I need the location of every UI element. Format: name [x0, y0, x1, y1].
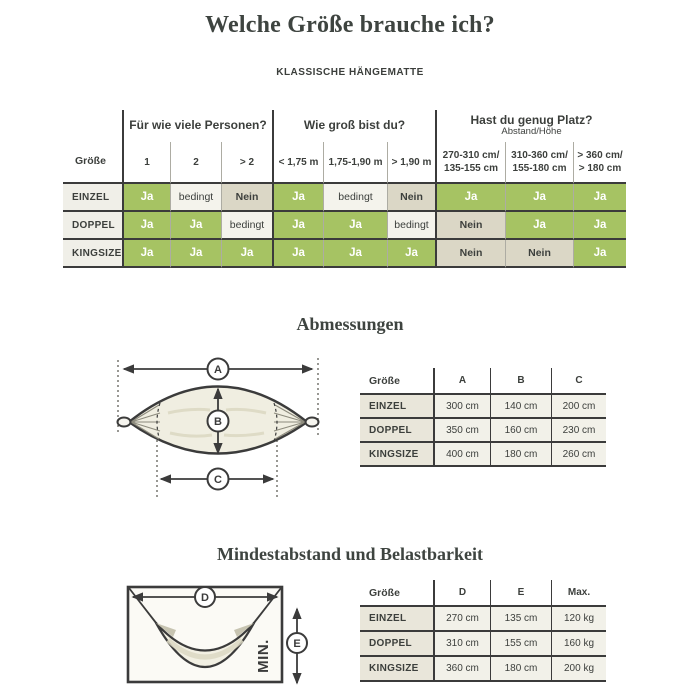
- matrix-cell: Ja: [387, 240, 435, 268]
- right-ring: [306, 418, 319, 427]
- table-cell: 180 cm: [490, 657, 551, 682]
- matrix-cell: bedingt: [221, 212, 272, 240]
- table-cell: 360 cm: [433, 657, 490, 682]
- group-header-persons: Für wie viele Personen?: [122, 110, 272, 142]
- table-cell: 200 kg: [551, 657, 606, 682]
- table-header: Größe: [360, 580, 433, 607]
- matrix-cell: Ja: [170, 240, 221, 268]
- group-label: Für wie viele Personen?: [129, 119, 266, 133]
- table-header: C: [551, 368, 606, 395]
- column-header: 1: [122, 142, 170, 184]
- column-header: > 2: [221, 142, 272, 184]
- table-cell: 160 cm: [490, 419, 551, 443]
- matrix-cell: Ja: [272, 212, 323, 240]
- table-cell: 120 kg: [551, 607, 606, 632]
- table-header: A: [433, 368, 490, 395]
- column-header: < 1,75 m: [272, 142, 323, 184]
- table-header: D: [433, 580, 490, 607]
- column-header: > 360 cm/ > 180 cm: [573, 142, 626, 184]
- hammock-size-guide-page: Welche Größe brauche ich? KLASSISCHE HÄN…: [0, 0, 700, 700]
- section-heading-mindestabstand: Mindestabstand und Belastbarkeit: [0, 544, 700, 565]
- dim-label-d: D: [195, 587, 215, 607]
- svg-text:E: E: [293, 638, 300, 650]
- matrix-cell: Ja: [272, 240, 323, 268]
- matrix-cell: Ja: [221, 240, 272, 268]
- row-label: KINGSIZE: [63, 240, 122, 268]
- table-cell: 230 cm: [551, 419, 606, 443]
- matrix-cell: bedingt: [387, 212, 435, 240]
- table-cell: 135 cm: [490, 607, 551, 632]
- matrix-cell: Nein: [505, 240, 573, 268]
- matrix-cell: Ja: [122, 240, 170, 268]
- size-comparison-table: Für wie viele Personen? Wie groß bist du…: [63, 110, 626, 268]
- matrix-cell: Ja: [272, 184, 323, 212]
- left-ring: [118, 418, 131, 427]
- min-label: MIN.: [255, 639, 272, 673]
- group-header-height: Wie groß bist du?: [272, 110, 435, 142]
- matrix-cell: Ja: [170, 212, 221, 240]
- matrix-cell: Ja: [435, 184, 505, 212]
- dim-label-a: A: [208, 359, 229, 380]
- section-heading-abmessungen: Abmessungen: [0, 314, 700, 335]
- hammock-side-view-diagram: MIN. D E: [116, 578, 316, 693]
- row-label: EINZEL: [63, 184, 122, 212]
- column-header: > 1,90 m: [387, 142, 435, 184]
- matrix-cell: Ja: [505, 212, 573, 240]
- svg-text:A: A: [214, 364, 222, 376]
- table-cell: 270 cm: [433, 607, 490, 632]
- column-header: 270-310 cm/ 135-155 cm: [435, 142, 505, 184]
- table-cell: 140 cm: [490, 395, 551, 419]
- table-header: E: [490, 580, 551, 607]
- row-label: DOPPEL: [360, 419, 433, 443]
- column-header: 2: [170, 142, 221, 184]
- matrix-cell: Ja: [573, 184, 626, 212]
- svg-text:D: D: [201, 592, 209, 604]
- group-sublabel: Abstand/Höhe: [501, 127, 561, 138]
- table-cell: 180 cm: [490, 443, 551, 467]
- matrix-cell: Ja: [573, 240, 626, 268]
- matrix-cell: Ja: [323, 212, 387, 240]
- table-cell: 310 cm: [433, 632, 490, 657]
- table-header: B: [490, 368, 551, 395]
- column-header: 310-360 cm/ 155-180 cm: [505, 142, 573, 184]
- table-cell: 350 cm: [433, 419, 490, 443]
- table-cell: 300 cm: [433, 395, 490, 419]
- row-label: EINZEL: [360, 395, 433, 419]
- matrix-cell: Ja: [122, 212, 170, 240]
- page-title: Welche Größe brauche ich?: [0, 12, 700, 39]
- group-header-space: Hast du genug Platz? Abstand/Höhe: [435, 110, 626, 142]
- table-header: Max.: [551, 580, 606, 607]
- mindestabstand-table: Größe D E Max. EINZEL 270 cm 135 cm 120 …: [360, 580, 606, 682]
- matrix-cell: Nein: [221, 184, 272, 212]
- matrix-cell: bedingt: [323, 184, 387, 212]
- table-cell: 155 cm: [490, 632, 551, 657]
- group-label: Hast du genug Platz?: [470, 114, 592, 128]
- matrix-cell: Ja: [573, 212, 626, 240]
- dim-label-c: C: [208, 469, 229, 490]
- table-cell: 260 cm: [551, 443, 606, 467]
- row-label: KINGSIZE: [360, 443, 433, 467]
- table-header: Größe: [360, 368, 433, 395]
- column-header: 1,75-1,90 m: [323, 142, 387, 184]
- table-cell: 400 cm: [433, 443, 490, 467]
- page-subtitle: KLASSISCHE HÄNGEMATTE: [0, 67, 700, 78]
- hammock-top-view-diagram: A B C: [110, 353, 345, 503]
- row-label: EINZEL: [360, 607, 433, 632]
- column-header-groesse: Größe: [63, 142, 122, 184]
- matrix-cell: Ja: [122, 184, 170, 212]
- corner-spacer: [63, 110, 122, 142]
- matrix-cell: Ja: [505, 184, 573, 212]
- matrix-cell: Nein: [387, 184, 435, 212]
- row-label: DOPPEL: [63, 212, 122, 240]
- row-label: KINGSIZE: [360, 657, 433, 682]
- dim-label-b: B: [208, 411, 229, 432]
- table-cell: 200 cm: [551, 395, 606, 419]
- group-label: Wie groß bist du?: [304, 119, 405, 133]
- dim-label-e: E: [287, 633, 307, 653]
- matrix-cell: Ja: [323, 240, 387, 268]
- matrix-cell: Nein: [435, 212, 505, 240]
- svg-text:C: C: [214, 474, 222, 486]
- matrix-cell: Nein: [435, 240, 505, 268]
- table-cell: 160 kg: [551, 632, 606, 657]
- matrix-cell: bedingt: [170, 184, 221, 212]
- svg-text:B: B: [214, 416, 222, 428]
- abmessungen-table: Größe A B C EINZEL 300 cm 140 cm 200 cm …: [360, 368, 606, 467]
- row-label: DOPPEL: [360, 632, 433, 657]
